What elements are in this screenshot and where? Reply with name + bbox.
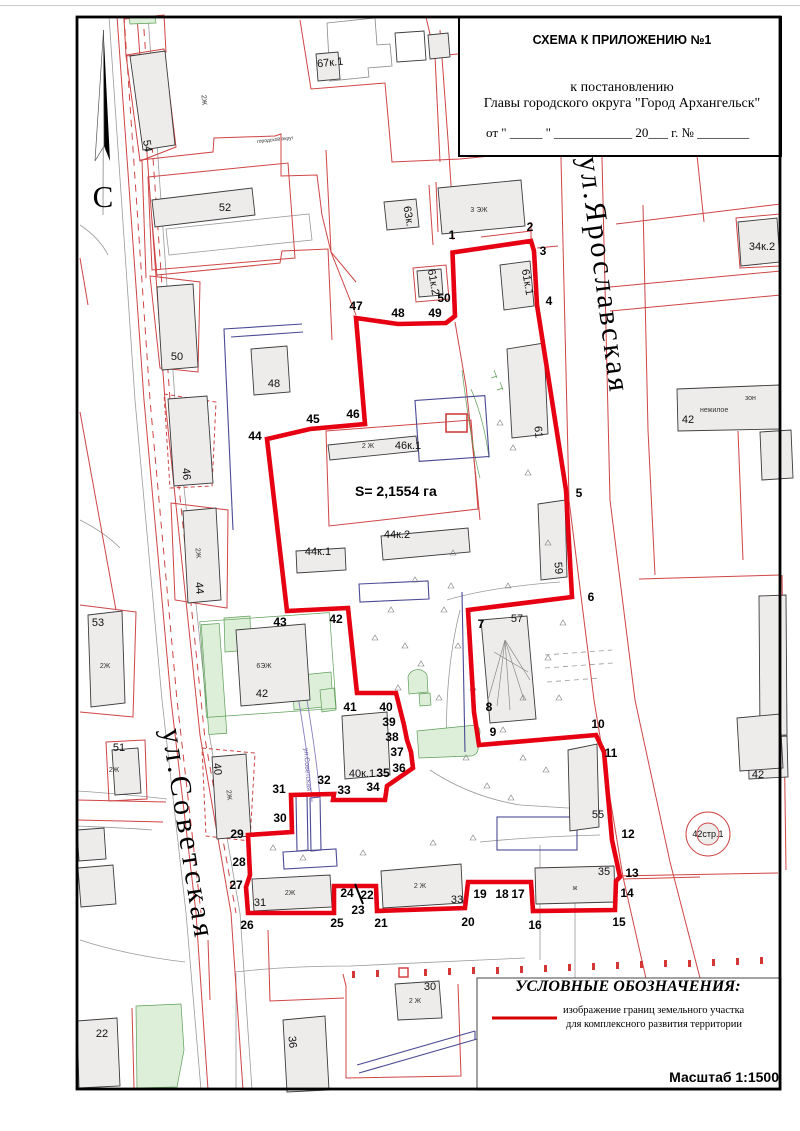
svg-text:20: 20 (461, 915, 475, 929)
svg-text:33: 33 (337, 783, 351, 797)
svg-text:44: 44 (248, 429, 262, 443)
svg-text:10: 10 (591, 717, 605, 731)
svg-text:61: 61 (531, 425, 544, 438)
svg-text:УСЛОВНЫЕ ОБОЗНАЧЕНИЯ:: УСЛОВНЫЕ ОБОЗНАЧЕНИЯ: (515, 978, 740, 995)
svg-text:24: 24 (340, 886, 354, 900)
svg-text:57: 57 (511, 613, 523, 625)
svg-text:19: 19 (473, 887, 487, 901)
svg-text:48: 48 (391, 306, 405, 320)
svg-text:23: 23 (351, 903, 365, 917)
svg-text:32: 32 (317, 773, 331, 787)
svg-text:2Ж: 2Ж (100, 663, 111, 670)
svg-text:42: 42 (256, 688, 268, 700)
svg-text:5: 5 (576, 486, 583, 500)
svg-text:изображение границ земельного: изображение границ земельного участка (563, 1005, 745, 1016)
svg-text:11: 11 (605, 746, 618, 760)
svg-text:46: 46 (346, 407, 360, 421)
svg-text:33: 33 (451, 894, 463, 906)
svg-text:13: 13 (625, 866, 639, 880)
svg-text:44к.2: 44к.2 (384, 529, 410, 541)
svg-text:54: 54 (140, 139, 154, 153)
svg-text:7: 7 (478, 617, 485, 631)
svg-text:2 Ж: 2 Ж (409, 998, 422, 1005)
svg-text:53: 53 (92, 617, 104, 629)
svg-text:8: 8 (486, 700, 493, 714)
svg-text:от " _____ " ____________ 20__: от " _____ " ____________ 20___ г. № ___… (486, 125, 750, 140)
svg-text:55: 55 (592, 809, 604, 821)
svg-text:51: 51 (113, 742, 125, 754)
svg-text:Главы городского округа "Город: Главы городского округа "Город Архангель… (484, 96, 760, 111)
svg-text:ж: ж (573, 885, 578, 892)
svg-text:36: 36 (392, 761, 406, 775)
svg-text:15: 15 (612, 915, 626, 929)
svg-text:36: 36 (285, 1035, 298, 1048)
svg-text:25: 25 (330, 916, 344, 930)
svg-text:2Ж: 2Ж (199, 95, 207, 107)
svg-text:45: 45 (306, 412, 320, 426)
svg-text:29: 29 (230, 827, 244, 841)
svg-text:1: 1 (449, 228, 456, 242)
svg-text:30: 30 (424, 981, 436, 993)
svg-text:35: 35 (376, 766, 390, 780)
svg-text:СХЕМА К ПРИЛОЖЕНИЮ №1: СХЕМА К ПРИЛОЖЕНИЮ №1 (533, 33, 712, 47)
svg-text:40: 40 (379, 700, 393, 714)
svg-text:43: 43 (273, 615, 287, 629)
svg-text:28: 28 (232, 855, 246, 869)
svg-text:44: 44 (192, 581, 205, 594)
svg-text:12: 12 (621, 827, 635, 841)
svg-text:42: 42 (329, 612, 343, 626)
svg-text:38: 38 (385, 730, 399, 744)
svg-text:3 ЭЖ: 3 ЭЖ (470, 207, 488, 214)
svg-text:2Ж: 2Ж (193, 548, 201, 560)
svg-text:34: 34 (366, 780, 380, 794)
svg-text:44к.1: 44к.1 (305, 546, 331, 558)
svg-text:34к.2: 34к.2 (749, 241, 775, 253)
svg-text:39: 39 (382, 715, 396, 729)
svg-text:для комплексного развития терр: для комплексного развития территории (566, 1019, 742, 1030)
svg-text:48: 48 (268, 378, 280, 390)
svg-text:42стр.1: 42стр.1 (692, 829, 723, 839)
svg-text:2: 2 (527, 220, 534, 234)
svg-text:21: 21 (374, 916, 388, 930)
svg-text:зон: зон (745, 395, 756, 402)
svg-text:17: 17 (511, 887, 525, 901)
svg-text:S= 2,1554 га: S= 2,1554 га (355, 483, 437, 499)
svg-text:к постановлению: к постановлению (570, 80, 673, 95)
svg-text:2Ж: 2Ж (224, 790, 232, 802)
svg-text:49: 49 (428, 306, 442, 320)
svg-text:37: 37 (390, 745, 404, 759)
svg-text:16: 16 (528, 918, 542, 932)
svg-text:2 Ж: 2 Ж (362, 443, 375, 450)
svg-text:2Ж: 2Ж (109, 767, 120, 774)
svg-text:47: 47 (349, 299, 363, 313)
svg-text:41: 41 (343, 700, 357, 714)
svg-text:2 Ж: 2 Ж (414, 883, 427, 890)
svg-text:27: 27 (229, 878, 243, 892)
svg-text:Масштаб 1:1500: Масштаб 1:1500 (669, 1069, 779, 1085)
svg-text:46к.1: 46к.1 (395, 440, 421, 452)
svg-text:С: С (93, 179, 114, 214)
svg-text:40к.1: 40к.1 (349, 768, 375, 780)
svg-text:2Ж: 2Ж (285, 890, 296, 897)
svg-text:31: 31 (272, 782, 286, 796)
svg-text:6: 6 (588, 590, 595, 604)
svg-text:35: 35 (598, 866, 610, 878)
svg-text:4: 4 (546, 294, 553, 308)
svg-text:26: 26 (240, 918, 254, 932)
svg-text:30: 30 (273, 811, 287, 825)
svg-text:42: 42 (752, 769, 764, 781)
svg-text:31: 31 (254, 897, 266, 909)
svg-text:6ЭЖ: 6ЭЖ (256, 663, 272, 670)
svg-text:18: 18 (495, 887, 509, 901)
svg-text:14: 14 (620, 886, 634, 900)
svg-text:50: 50 (171, 351, 183, 363)
svg-text:нежилое: нежилое (700, 407, 728, 414)
svg-text:59: 59 (551, 561, 564, 574)
svg-text:9: 9 (490, 725, 497, 739)
svg-text:3: 3 (540, 244, 547, 258)
svg-text:52: 52 (219, 202, 231, 214)
svg-text:50: 50 (437, 291, 451, 305)
svg-text:40: 40 (210, 762, 223, 775)
svg-text:42: 42 (682, 414, 694, 426)
svg-text:22: 22 (96, 1028, 108, 1040)
svg-text:46: 46 (179, 467, 192, 480)
